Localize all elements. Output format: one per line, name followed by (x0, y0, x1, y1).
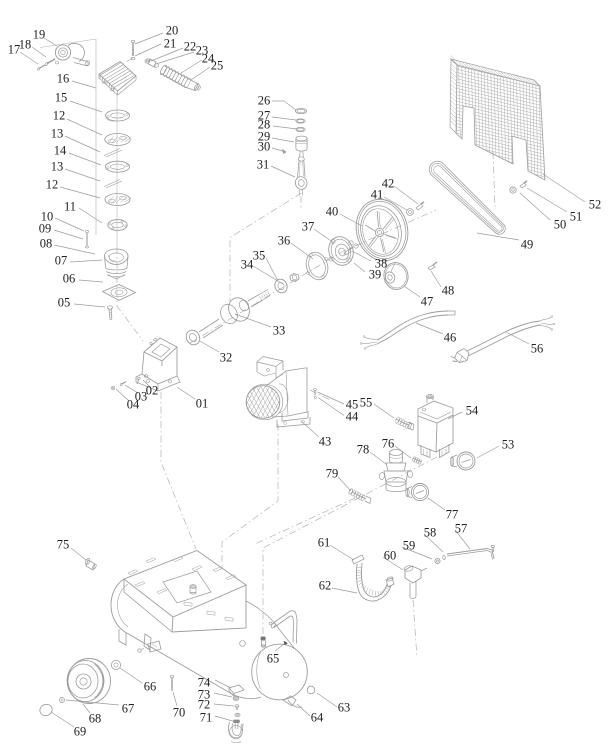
svg-text:70: 70 (173, 705, 186, 719)
svg-text:02: 02 (146, 383, 159, 397)
svg-text:47: 47 (421, 294, 434, 308)
svg-text:57: 57 (455, 521, 468, 535)
svg-text:25: 25 (211, 58, 224, 72)
svg-text:22: 22 (184, 39, 197, 53)
svg-text:01: 01 (196, 396, 209, 410)
svg-text:46: 46 (444, 330, 457, 344)
svg-text:45: 45 (346, 397, 359, 411)
svg-text:14: 14 (54, 143, 67, 157)
svg-text:65: 65 (267, 651, 280, 665)
svg-text:75: 75 (57, 537, 70, 551)
svg-text:66: 66 (144, 679, 157, 693)
svg-text:76: 76 (382, 436, 395, 450)
svg-text:11: 11 (64, 199, 76, 213)
svg-text:51: 51 (570, 209, 583, 223)
svg-text:13: 13 (51, 126, 64, 140)
svg-text:40: 40 (326, 204, 339, 218)
svg-text:31: 31 (257, 157, 270, 171)
svg-text:12: 12 (53, 108, 66, 122)
svg-text:64: 64 (311, 710, 324, 724)
svg-text:18: 18 (19, 37, 32, 51)
svg-text:73: 73 (198, 687, 211, 701)
svg-text:37: 37 (302, 219, 315, 233)
svg-text:21: 21 (164, 36, 177, 50)
svg-text:71: 71 (200, 710, 213, 724)
svg-text:42: 42 (382, 176, 395, 190)
svg-text:78: 78 (357, 442, 370, 456)
svg-text:06: 06 (63, 271, 76, 285)
svg-text:63: 63 (338, 700, 351, 714)
svg-text:44: 44 (346, 409, 359, 423)
svg-text:58: 58 (424, 525, 437, 539)
svg-text:12: 12 (46, 177, 59, 191)
svg-text:05: 05 (58, 295, 71, 309)
svg-text:52: 52 (589, 197, 602, 211)
svg-text:08: 08 (40, 236, 53, 250)
svg-text:59: 59 (403, 538, 416, 552)
svg-text:16: 16 (57, 71, 70, 85)
svg-text:13: 13 (51, 159, 64, 173)
svg-text:79: 79 (326, 466, 339, 480)
svg-text:15: 15 (55, 90, 68, 104)
svg-text:69: 69 (74, 724, 87, 738)
svg-text:33: 33 (273, 323, 286, 337)
svg-text:39: 39 (369, 267, 382, 281)
svg-text:54: 54 (466, 403, 479, 417)
svg-text:56: 56 (531, 341, 544, 355)
svg-text:20: 20 (166, 23, 179, 37)
svg-text:60: 60 (384, 548, 397, 562)
svg-text:68: 68 (89, 711, 102, 725)
svg-text:55: 55 (360, 395, 373, 409)
svg-text:32: 32 (220, 350, 233, 364)
svg-text:04: 04 (127, 397, 140, 411)
svg-text:19: 19 (33, 27, 46, 41)
svg-text:50: 50 (554, 217, 567, 231)
svg-text:36: 36 (278, 233, 291, 247)
svg-text:35: 35 (253, 248, 266, 262)
svg-text:26: 26 (258, 93, 271, 107)
svg-text:48: 48 (442, 283, 455, 297)
svg-text:07: 07 (55, 253, 68, 267)
svg-text:61: 61 (318, 535, 331, 549)
svg-text:77: 77 (446, 507, 459, 521)
svg-text:62: 62 (319, 578, 332, 592)
svg-text:67: 67 (122, 701, 135, 715)
svg-text:09: 09 (39, 221, 52, 235)
svg-text:30: 30 (258, 139, 271, 153)
svg-text:43: 43 (319, 434, 332, 448)
svg-text:49: 49 (521, 237, 534, 251)
svg-text:74: 74 (198, 675, 211, 689)
svg-text:53: 53 (502, 437, 515, 451)
